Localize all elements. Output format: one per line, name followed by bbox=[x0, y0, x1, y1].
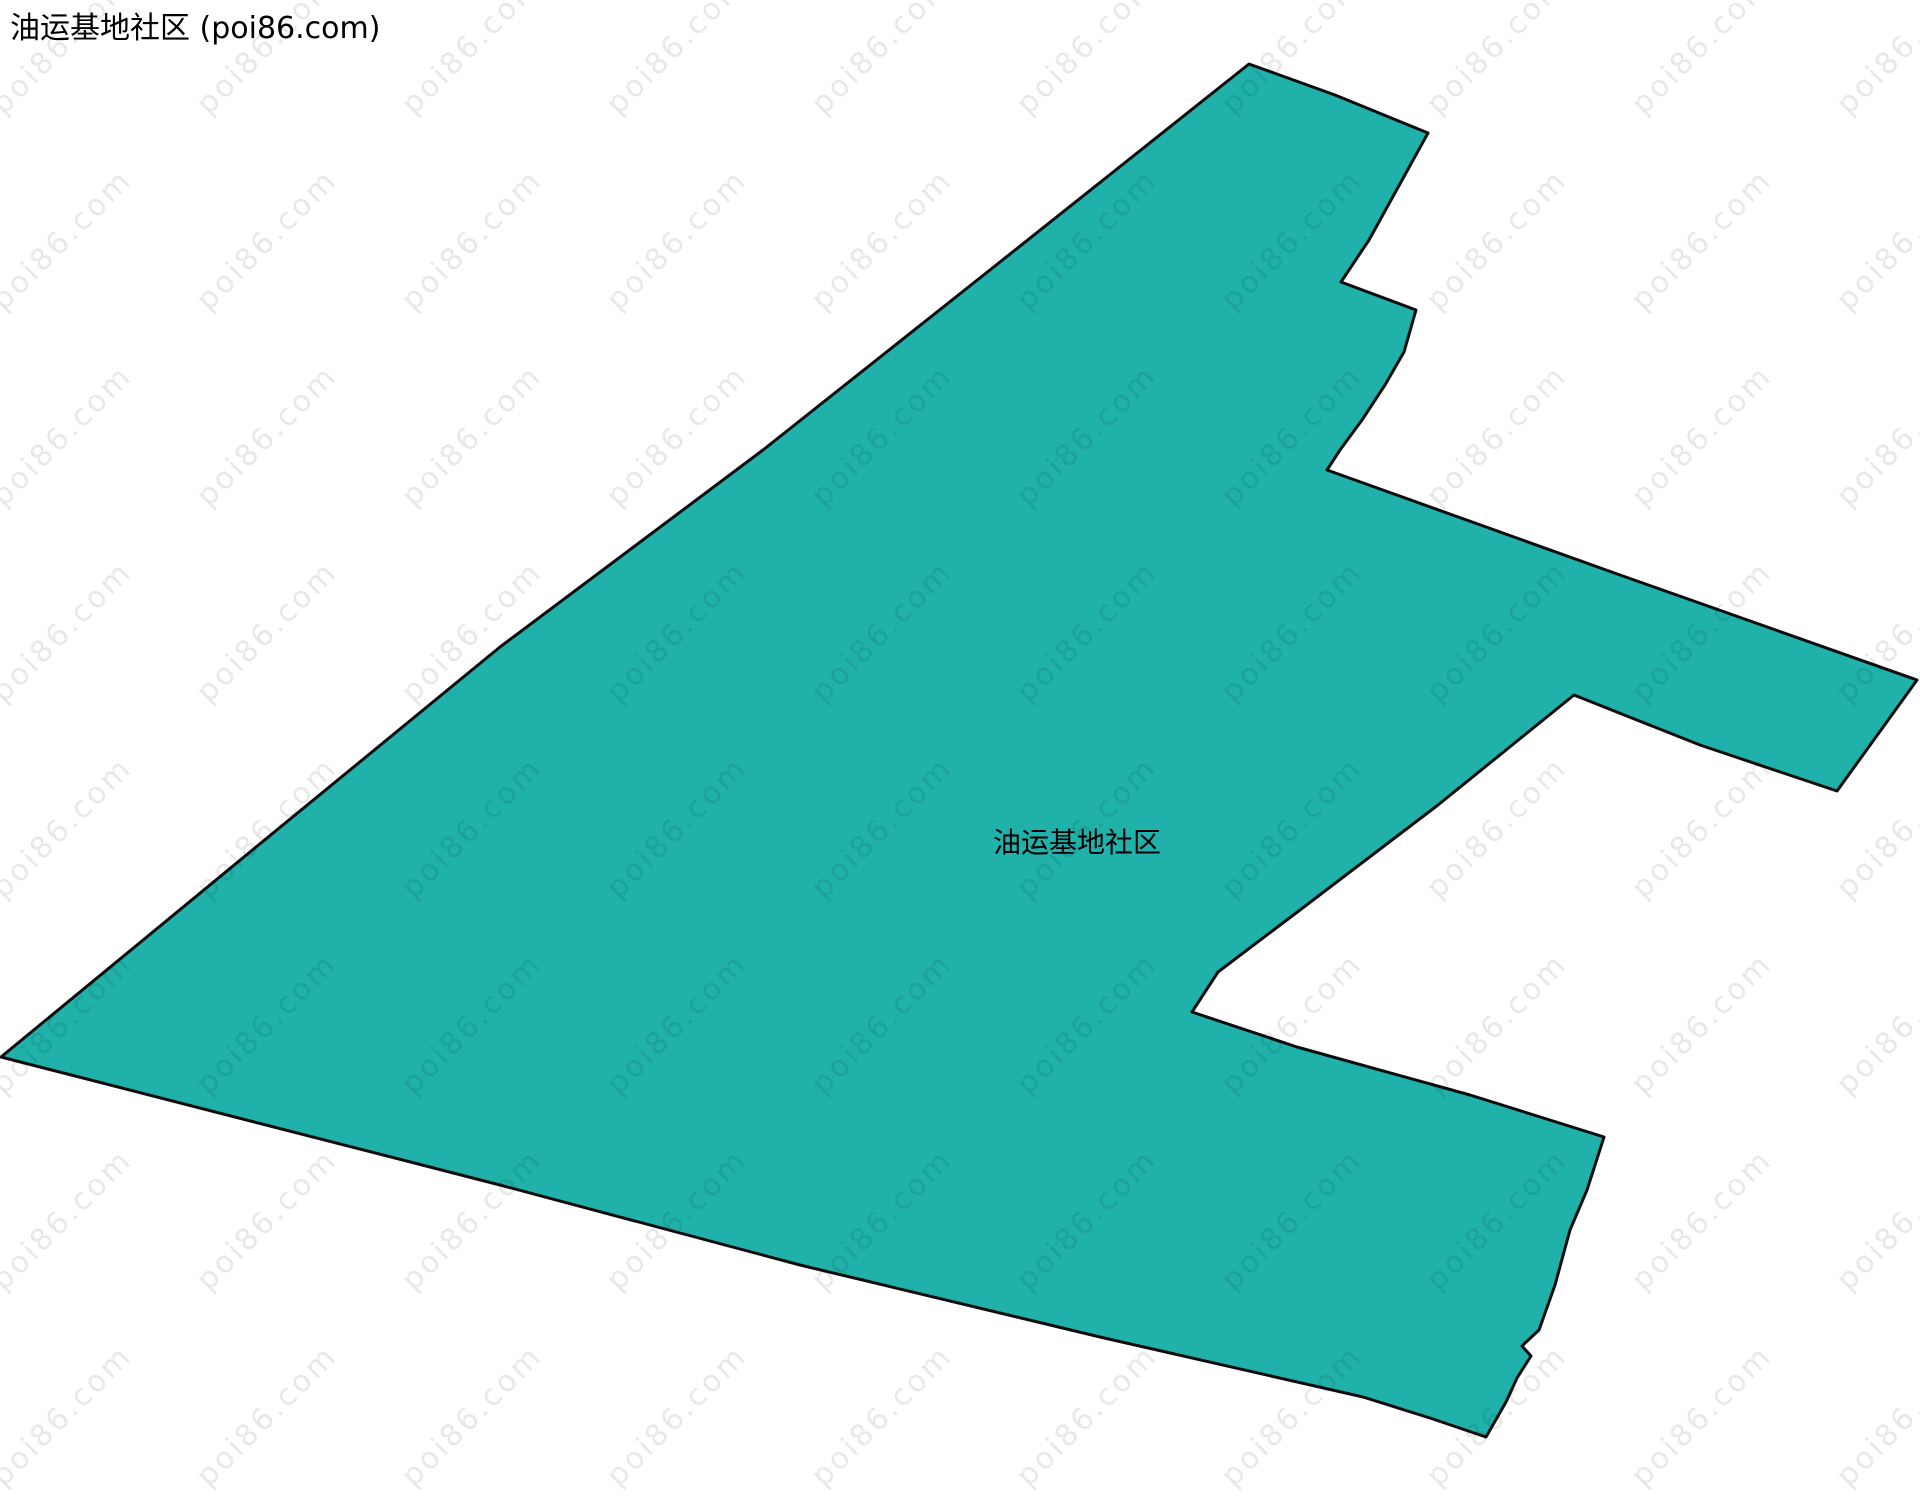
region-label: 油运基地社区 bbox=[993, 821, 1161, 861]
region-polygon bbox=[1, 64, 1917, 1437]
region-map bbox=[0, 0, 1920, 1503]
page-title: 油运基地社区 (poi86.com) bbox=[10, 10, 380, 48]
map-page: 油运基地社区 (poi86.com) poi86.compoi86.compoi… bbox=[0, 0, 1920, 1503]
